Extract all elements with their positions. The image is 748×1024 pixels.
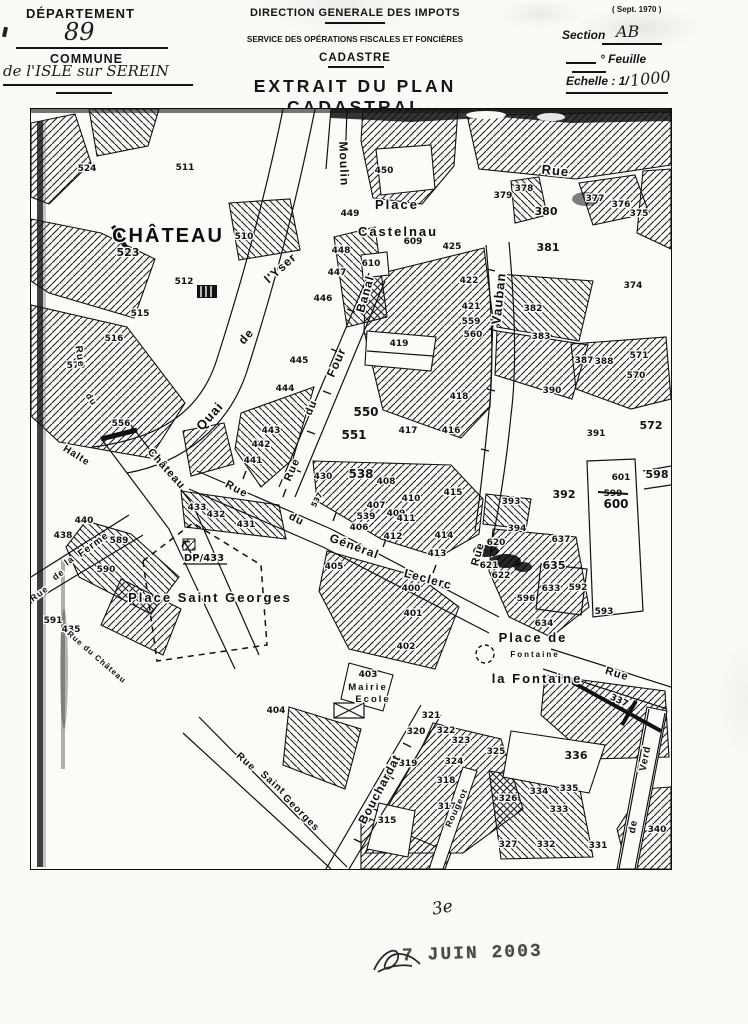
street-name: Four xyxy=(324,346,349,380)
scan-artifact xyxy=(2,27,8,38)
parcel-number: 325 xyxy=(487,747,506,757)
place-name: Ecole xyxy=(355,694,390,705)
parcel-number: 610 xyxy=(362,259,381,269)
divider xyxy=(325,22,385,24)
section-value: AB xyxy=(616,22,639,41)
parcel-number: 622 xyxy=(492,571,511,581)
parcel-number: 381 xyxy=(537,241,560,254)
scanned-cadastral-extract: DÉPARTEMENT 89 COMMUNE de l'ISLE sur SER… xyxy=(0,0,748,1024)
parcel-number: 422 xyxy=(460,276,479,286)
parcel-number: 322 xyxy=(437,726,456,736)
parcel-number: 388 xyxy=(595,357,614,367)
parcel-number: 327 xyxy=(499,840,518,850)
parcel-number: 550 xyxy=(353,405,378,419)
parcel-number: 601 xyxy=(612,473,631,483)
parcel-number: 559 xyxy=(462,317,481,327)
parcel-number: 446 xyxy=(314,294,333,304)
parcel-number: 620 xyxy=(487,538,506,548)
parcel-number: 408 xyxy=(377,477,396,487)
parcel-number: 593 xyxy=(595,607,614,617)
parcel-number: 403 xyxy=(359,670,378,680)
parcel-number: 538 xyxy=(348,467,373,481)
parcel-number: 590 xyxy=(97,565,116,575)
parcel-number: 440 xyxy=(75,516,94,526)
handwritten-note: 3e xyxy=(430,896,454,919)
parcel-number: 592 xyxy=(569,583,588,593)
parcel-number: 387 xyxy=(575,356,594,366)
parcel-number: 334 xyxy=(530,787,549,797)
underline xyxy=(602,43,662,45)
parcel-number: 438 xyxy=(54,531,73,541)
parcel-number: 326 xyxy=(499,794,518,804)
underline xyxy=(16,47,168,49)
parcel-number: 433 xyxy=(188,503,207,513)
divider xyxy=(328,66,384,68)
parcel-number: 443 xyxy=(262,426,281,436)
parcel-number: 421 xyxy=(462,302,481,312)
parcel-number: 380 xyxy=(535,205,558,218)
parcel-number: 515 xyxy=(131,309,150,319)
departement-value: 89 xyxy=(64,18,95,46)
parcel-number: 332 xyxy=(537,840,556,850)
parcel-number: 340 xyxy=(648,825,667,835)
place-name: la Fontaine xyxy=(492,671,583,686)
parcel-number: 523 xyxy=(117,246,140,259)
parcel-number: 634 xyxy=(535,619,554,629)
parcel-number: 415 xyxy=(444,488,463,498)
parcel-number: 375 xyxy=(630,209,649,219)
parcel-number: 516 xyxy=(105,334,124,344)
edition-note: ( Sept. 1970 ) xyxy=(612,5,661,14)
parcel-number: 406 xyxy=(350,523,369,533)
cadastral-map: 5245115105235125155165705564404385895905… xyxy=(31,109,671,869)
parcel-number: 571 xyxy=(630,351,649,361)
parcel-number: 637 xyxy=(552,535,571,545)
strikethrough-mark xyxy=(598,492,628,494)
parcel-number: 441 xyxy=(244,456,263,466)
fontaine-icon xyxy=(476,645,494,663)
chateau-building-icon xyxy=(197,285,217,298)
parcel-number: 449 xyxy=(341,209,360,219)
parcel-number: DP/433 xyxy=(184,553,224,564)
commune-value: de l'ISLE sur SEREIN xyxy=(3,62,169,80)
parcel-number: 400 xyxy=(402,584,421,594)
map-frame: 5245115105235125155165705564404385895905… xyxy=(30,108,672,870)
parcel-number: 374 xyxy=(624,281,643,291)
parcel-number: 333 xyxy=(550,805,569,815)
parcel-number: 570 xyxy=(627,371,646,381)
parcel-number: 430 xyxy=(314,472,333,482)
parcel-number: 442 xyxy=(252,440,271,450)
parcel-number: 378 xyxy=(515,184,534,194)
underline xyxy=(56,92,112,94)
parcel-number: 510 xyxy=(235,232,254,242)
parcel-number: 512 xyxy=(175,277,194,287)
street-name: Saint xyxy=(258,769,287,797)
parcel-number: 402 xyxy=(397,642,416,652)
parcel-number: 633 xyxy=(542,584,561,594)
place-name: Place xyxy=(375,197,419,212)
parcel-number: 425 xyxy=(443,242,462,252)
parcel-number: 600 xyxy=(603,497,628,511)
street-name: Rue xyxy=(541,162,570,180)
parcel-number: 524 xyxy=(78,164,97,174)
parcel-number: 417 xyxy=(399,426,418,436)
parcel-number: 407 xyxy=(367,501,386,511)
parcel-number: 432 xyxy=(207,510,226,520)
parcel-number: 335 xyxy=(560,784,579,794)
parcel-number: 448 xyxy=(332,246,351,256)
parcel-number: 318 xyxy=(437,776,456,786)
parcel-number: 416 xyxy=(442,426,461,436)
parcel-number: 556 xyxy=(112,419,131,429)
parcel-number: 431 xyxy=(237,520,256,530)
parcel-number: 377 xyxy=(586,194,605,204)
echelle-value: 1000 xyxy=(629,67,671,90)
underline xyxy=(572,71,606,73)
parcel-number: 336 xyxy=(565,749,588,762)
parcel-number: 419 xyxy=(390,339,409,349)
parcel-number: 412 xyxy=(384,532,403,542)
street-name: Rue xyxy=(234,751,258,774)
parcel-number: 331 xyxy=(589,841,608,851)
parcel-number: 589 xyxy=(110,536,129,546)
parcel-number: 539 xyxy=(357,512,376,522)
parcel-number: 376 xyxy=(612,200,631,210)
parcel-number: 414 xyxy=(435,531,454,541)
parcel-number: 391 xyxy=(587,429,606,439)
parcel-number: 621 xyxy=(480,561,499,571)
parcel-number: 411 xyxy=(397,514,416,524)
parcel-number: 405 xyxy=(325,562,344,572)
parcel-number: 410 xyxy=(402,494,421,504)
section-label: Section xyxy=(562,28,605,42)
echelle-label: Echelle : 1/ xyxy=(566,74,629,88)
parcel-number: 321 xyxy=(422,711,441,721)
pen-scribble xyxy=(368,938,428,983)
parcel-number: 598 xyxy=(646,468,669,481)
parcel-number: 551 xyxy=(341,428,366,442)
parcel-number: 596 xyxy=(517,594,536,604)
underline xyxy=(3,84,193,86)
parcel-number: 401 xyxy=(404,609,423,619)
place-name: Place Saint Georges xyxy=(128,590,292,605)
parcel-number: 382 xyxy=(524,304,543,314)
street-name: Rue du Château xyxy=(65,629,127,685)
parcel-number: 511 xyxy=(176,163,195,173)
parcel-number: 572 xyxy=(640,419,663,432)
parcel-number: 392 xyxy=(553,488,576,501)
parcel-number: 413 xyxy=(428,549,447,559)
street-name: Rue xyxy=(223,478,250,500)
parcel-number: 445 xyxy=(290,356,309,366)
place-name: Mairie xyxy=(348,682,387,693)
parcel-number: 315 xyxy=(378,816,397,826)
parcel-number: 393 xyxy=(502,497,521,507)
place-name: CHÂTEAU xyxy=(112,223,224,247)
blank-line xyxy=(566,62,596,64)
street-name: Rue xyxy=(604,665,630,683)
parcel-number: 444 xyxy=(276,384,295,394)
parcel-number: 394 xyxy=(508,524,527,534)
place-name: Place de xyxy=(499,630,568,645)
parcel-number: 635 xyxy=(543,559,566,572)
street-name: de xyxy=(235,326,256,347)
header-cadastre: CADASTRE xyxy=(185,48,525,66)
parcel-number: 379 xyxy=(494,191,513,201)
parcel-number: 450 xyxy=(375,166,394,176)
parcel-number: 591 xyxy=(44,616,63,626)
street-name: du xyxy=(287,510,306,528)
place-name: Fontaine xyxy=(510,650,559,659)
header-administration: DIRECTION GENERALE DES IMPOTS xyxy=(185,3,525,21)
parcel-number: 323 xyxy=(452,736,471,746)
parcel-number: 320 xyxy=(407,727,426,737)
street-name: Moulin xyxy=(336,141,352,186)
parcel-number: 324 xyxy=(445,757,464,767)
parcel-number: 447 xyxy=(328,268,347,278)
header-service: SERVICE DES OPÉRATIONS FISCALES ET FONCI… xyxy=(185,29,525,47)
parcel-number: 418 xyxy=(450,392,469,402)
feuille-label: ° Feuille xyxy=(600,52,646,66)
parcel-number: 404 xyxy=(267,706,286,716)
underline xyxy=(566,92,668,94)
parcel-number: 383 xyxy=(532,332,551,342)
place-name: Castelnau xyxy=(358,224,438,239)
parcel-number: 560 xyxy=(464,330,483,340)
parcel-number: 390 xyxy=(543,386,562,396)
